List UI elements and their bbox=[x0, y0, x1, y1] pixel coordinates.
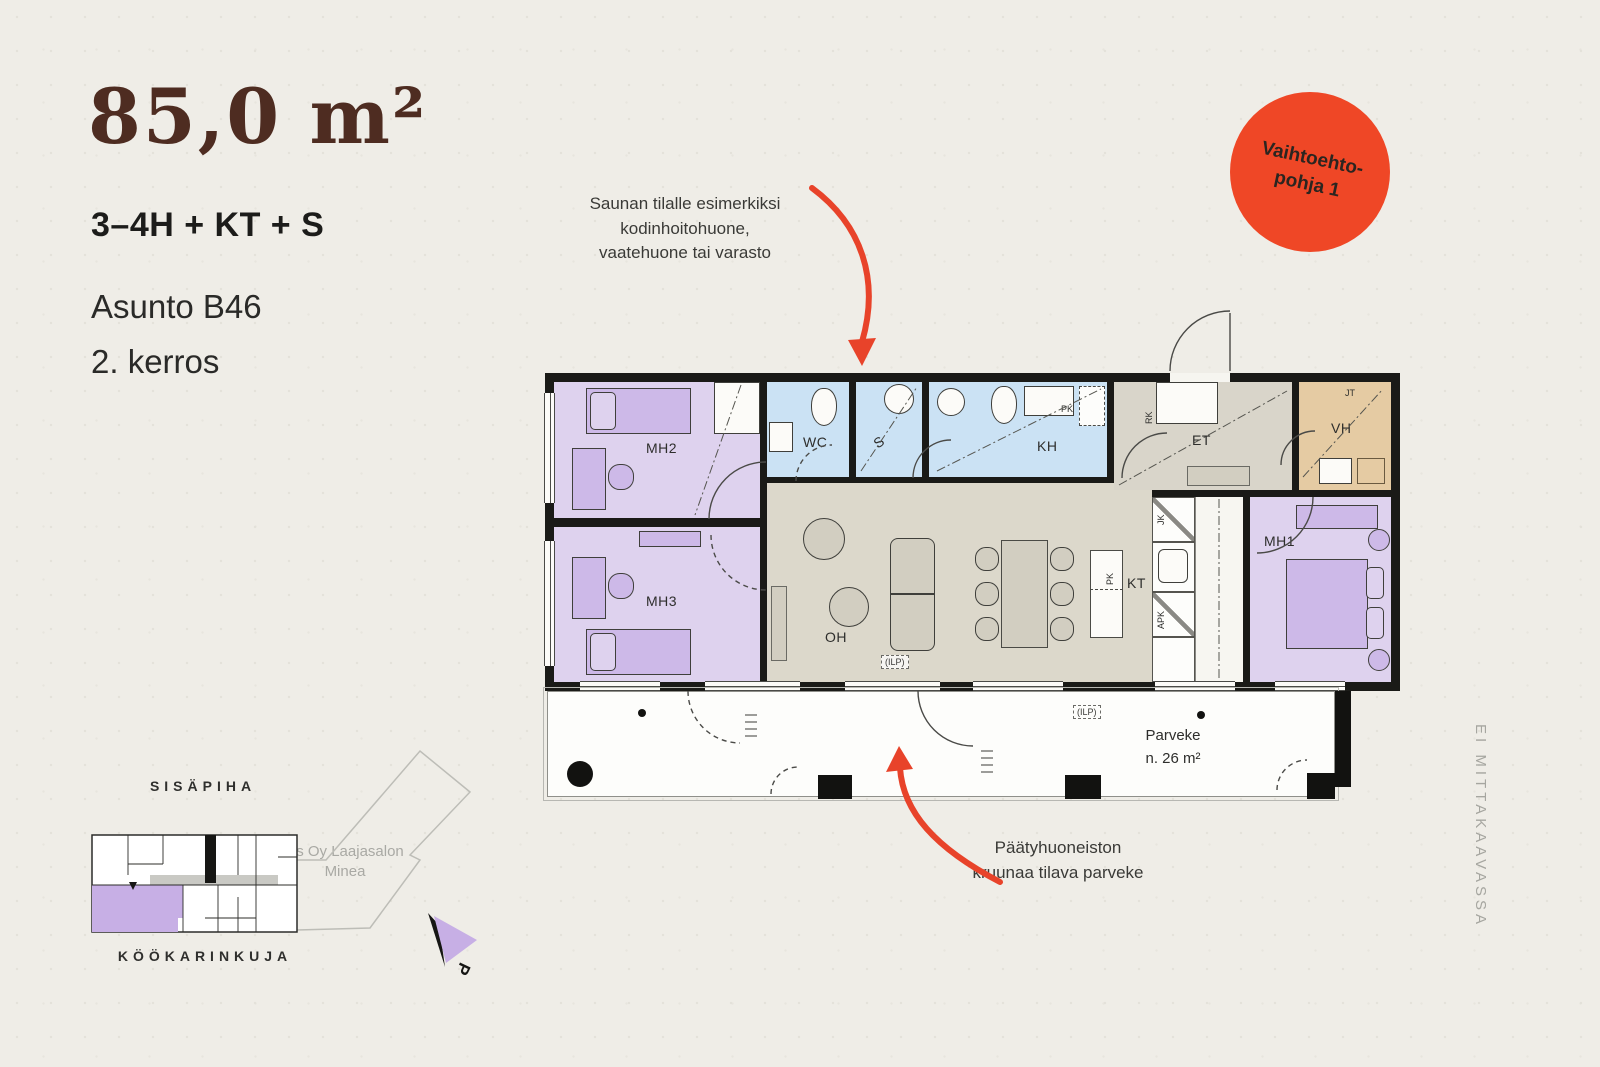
entrance-door-arc bbox=[1170, 311, 1230, 371]
window bbox=[580, 681, 660, 691]
room-label-oh: OH bbox=[825, 629, 847, 645]
window bbox=[705, 681, 800, 691]
shower bbox=[884, 384, 914, 414]
hall-closet bbox=[1156, 382, 1218, 424]
toilet bbox=[811, 388, 837, 426]
sofa bbox=[890, 538, 935, 651]
ceiling-point bbox=[638, 709, 646, 717]
desk bbox=[572, 557, 606, 619]
window bbox=[544, 541, 555, 666]
window bbox=[1155, 681, 1235, 691]
balcony-annotation: Päätyhuoneiston kruunaa tilava parveke bbox=[968, 836, 1148, 885]
washer-reservation bbox=[1079, 386, 1105, 426]
room-label-vh: VH bbox=[1331, 420, 1351, 436]
kitchen-counter-column bbox=[1195, 497, 1243, 682]
apartment-name: Asunto B46 bbox=[91, 288, 262, 326]
room-label-et: ET bbox=[1192, 432, 1211, 448]
compass-fin bbox=[434, 916, 477, 963]
closet bbox=[714, 382, 760, 434]
room-kh: PK KH bbox=[929, 382, 1107, 477]
sink bbox=[769, 422, 793, 452]
heat-pump-reservation: (ILP) bbox=[881, 655, 909, 669]
dining-chair bbox=[1050, 617, 1074, 641]
balcony-column bbox=[567, 761, 593, 787]
sofa-seam bbox=[891, 593, 934, 595]
window bbox=[544, 393, 555, 503]
closet bbox=[1319, 458, 1352, 484]
toilet bbox=[991, 386, 1017, 424]
area-number: 85,0 m² bbox=[88, 72, 427, 161]
armchair bbox=[803, 518, 845, 560]
bed-pillow bbox=[590, 392, 616, 430]
dining-chair bbox=[975, 582, 999, 606]
room-label-kh: KH bbox=[1037, 438, 1057, 454]
tv-bench bbox=[771, 586, 787, 661]
window bbox=[845, 681, 940, 691]
wardrobe bbox=[1296, 505, 1378, 529]
kitchen-appliance-column: JK APK bbox=[1152, 497, 1195, 682]
sauna-annotation: Saunan tilalle esimerkiksi kodinhoitohuo… bbox=[586, 192, 784, 266]
passage bbox=[1114, 473, 1152, 490]
floor-plan: MH2 MH3 WC S PK KH bbox=[545, 373, 1400, 808]
room-label-wc: WC bbox=[803, 434, 827, 450]
side-table bbox=[1368, 529, 1390, 551]
dining-chair bbox=[1050, 547, 1074, 571]
shower bbox=[937, 388, 965, 416]
dining-chair bbox=[975, 617, 999, 641]
compass-north-label: P bbox=[452, 960, 474, 978]
ceiling-point bbox=[1197, 711, 1205, 719]
hall-bench bbox=[1187, 466, 1250, 486]
compass: P bbox=[428, 913, 477, 978]
entrance-opening bbox=[1170, 373, 1230, 382]
room-mh3: MH3 bbox=[554, 527, 760, 682]
side-table bbox=[1368, 649, 1390, 671]
badge-text: Vaihtoehto- pohja 1 bbox=[1254, 136, 1366, 208]
room-mh1: MH1 bbox=[1250, 497, 1391, 682]
pillow bbox=[1366, 607, 1384, 639]
site-plan: P bbox=[88, 742, 488, 992]
balcony-label: Parveke n. 26 m² bbox=[1093, 725, 1253, 770]
pillow bbox=[1366, 567, 1384, 599]
chair bbox=[608, 573, 634, 599]
room-label-kt: KT bbox=[1127, 575, 1146, 591]
alternative-layout-badge: Vaihtoehto- pohja 1 bbox=[1230, 92, 1390, 252]
stair-core bbox=[205, 835, 216, 883]
not-to-scale-note: EI MITTAKAAVASSA bbox=[1472, 724, 1489, 928]
room-label-sauna: S bbox=[870, 433, 887, 452]
label-pk-island: PK bbox=[1105, 573, 1115, 585]
balcony-pillar bbox=[1065, 775, 1101, 799]
room-label-mh2: MH2 bbox=[646, 440, 677, 456]
window bbox=[1275, 681, 1345, 691]
label-jk: JK bbox=[1156, 514, 1166, 525]
balcony-wall bbox=[1335, 691, 1351, 787]
bed-pillow bbox=[590, 633, 616, 671]
highlighted-apartment bbox=[92, 885, 183, 932]
room-mh2: MH2 bbox=[554, 382, 760, 518]
chair bbox=[608, 464, 634, 490]
sauna-arrowhead bbox=[848, 338, 876, 366]
apartment-type: 3–4H + KT + S bbox=[91, 206, 324, 245]
living-kitchen-area: PK OH KT bbox=[767, 483, 1152, 682]
cabinet bbox=[1152, 637, 1195, 682]
apartment-floor: 2. kerros bbox=[91, 343, 219, 381]
label-apk: APK bbox=[1156, 611, 1166, 629]
shelf bbox=[1357, 458, 1385, 484]
desk bbox=[572, 448, 606, 510]
room-sauna: S bbox=[856, 382, 922, 477]
double-bed bbox=[1286, 559, 1368, 649]
coffee-table bbox=[829, 587, 869, 627]
sink bbox=[1158, 549, 1188, 583]
balcony-area: n. 26 m² bbox=[1093, 748, 1253, 771]
room-wc: WC bbox=[767, 382, 849, 477]
dining-chair bbox=[975, 547, 999, 571]
label-jt: JT bbox=[1345, 388, 1355, 398]
building-wing-outline bbox=[297, 751, 470, 930]
shelf bbox=[639, 531, 701, 547]
balcony-pillar bbox=[818, 775, 852, 799]
room-vh: JT VH bbox=[1299, 382, 1391, 490]
balcony-door-glazing bbox=[973, 681, 1063, 691]
room-label-mh3: MH3 bbox=[646, 593, 677, 609]
apartment-outline: MH2 MH3 WC S PK KH bbox=[545, 373, 1400, 691]
room-label-mh1: MH1 bbox=[1264, 533, 1295, 549]
balcony-corner-pillar bbox=[1307, 773, 1335, 799]
sauna-arrow bbox=[812, 188, 869, 342]
heat-pump-reservation: (ILP) bbox=[1073, 705, 1101, 719]
dining-table bbox=[1001, 540, 1048, 648]
dining-chair bbox=[1050, 582, 1074, 606]
label-rk: RK bbox=[1144, 411, 1154, 424]
label-pk-bath: PK bbox=[1061, 404, 1073, 414]
balcony-name: Parveke bbox=[1093, 725, 1253, 748]
